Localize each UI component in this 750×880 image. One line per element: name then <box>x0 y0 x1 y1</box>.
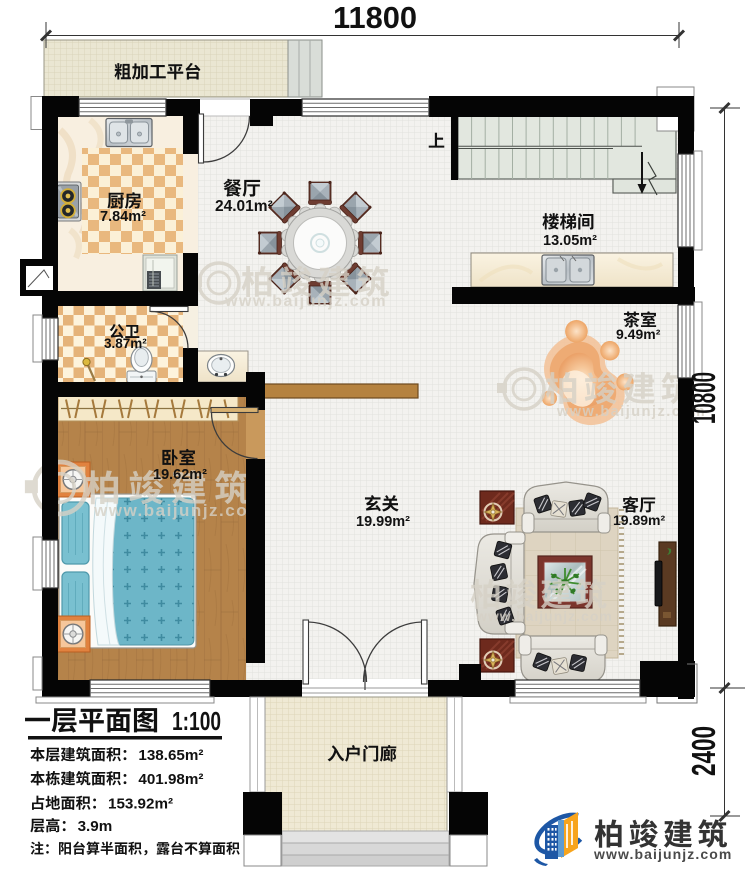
svg-text:www.baijunjz.com: www.baijunjz.com <box>224 293 387 310</box>
svg-text:9.49m²: 9.49m² <box>616 326 661 342</box>
svg-text:www.baijunjz.com: www.baijunjz.com <box>93 501 265 520</box>
svg-text:153.92m²: 153.92m² <box>108 796 173 813</box>
svg-text:www.baijunjz.com: www.baijunjz.com <box>475 608 613 624</box>
svg-text:www.baijunjz.com: www.baijunjz.com <box>593 846 732 862</box>
svg-text:1:100: 1:100 <box>172 706 221 736</box>
svg-text:3.87m²: 3.87m² <box>104 336 147 351</box>
svg-text:7.84m²: 7.84m² <box>100 209 146 225</box>
svg-text:19.99m²: 19.99m² <box>356 514 410 530</box>
svg-text:13.05m²: 13.05m² <box>543 233 597 249</box>
svg-text:19.62m²: 19.62m² <box>153 467 207 483</box>
svg-text:10800: 10800 <box>685 372 722 424</box>
svg-text:3.9m: 3.9m <box>78 818 113 835</box>
svg-text:401.98m²: 401.98m² <box>138 771 203 788</box>
svg-text:2400: 2400 <box>685 726 722 776</box>
svg-text:19.89m²: 19.89m² <box>613 512 665 528</box>
svg-text:11800: 11800 <box>333 0 417 35</box>
svg-text:24.01m²: 24.01m² <box>215 198 273 215</box>
svg-text:138.65m²: 138.65m² <box>138 747 203 764</box>
